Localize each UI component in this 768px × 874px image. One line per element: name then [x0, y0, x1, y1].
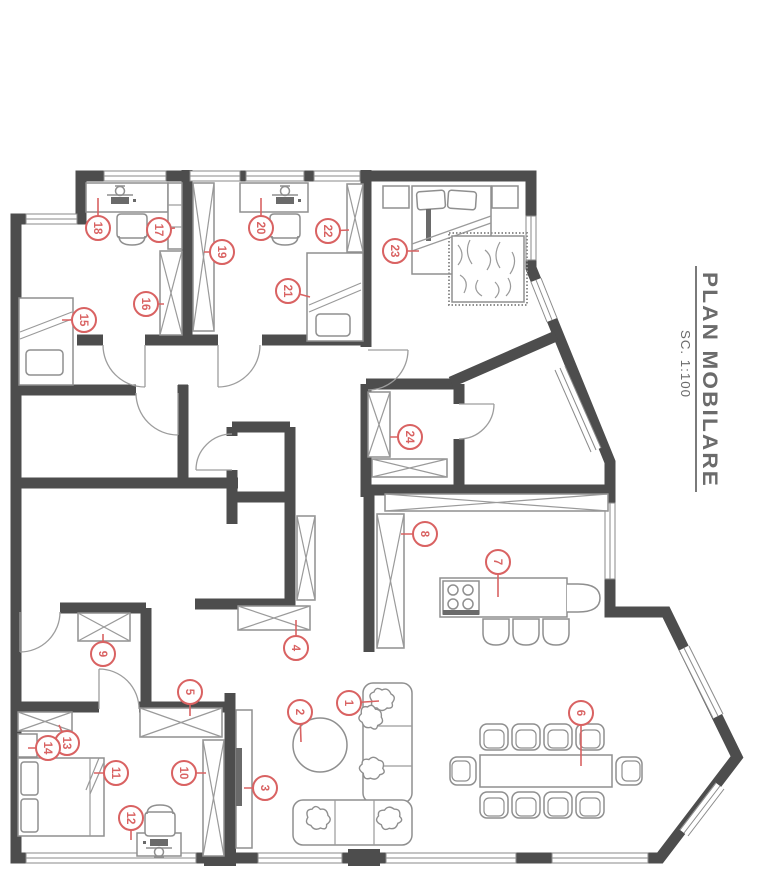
nightstand-left [383, 186, 409, 208]
rug-master [449, 233, 527, 305]
svg-text:24: 24 [403, 431, 415, 444]
svg-text:12: 12 [124, 812, 136, 825]
window-bottom-4 [552, 853, 648, 863]
window-topleft [26, 214, 77, 224]
wardrobe-4a [297, 516, 315, 600]
dresser-24b [372, 459, 447, 477]
svg-text:9: 9 [96, 651, 108, 657]
window-top-1 [104, 171, 166, 181]
svg-text:4: 4 [289, 645, 301, 652]
window-diag-bay-2 [680, 783, 724, 836]
floor-plan-page: 123456789101112131415161718192021222324 … [0, 0, 768, 874]
bed-11 [18, 758, 104, 836]
bed-15 [19, 298, 73, 385]
floor-plan-drawing: 123456789101112131415161718192021222324 … [0, 0, 768, 874]
furniture [18, 183, 642, 857]
door-bedroom1 [103, 345, 145, 387]
wardrobe-9 [78, 613, 130, 641]
furniture-marker-21: 21 [276, 279, 310, 303]
furniture-marker-22: 22 [316, 219, 349, 243]
chair-desk-20 [270, 214, 300, 245]
furniture-marker-8: 8 [401, 522, 437, 546]
kitchen-island-7 [440, 578, 600, 617]
window-right-kitchen [605, 503, 615, 579]
door-bedroom2 [218, 345, 260, 387]
svg-text:20: 20 [254, 222, 266, 235]
dining-table-6 [480, 755, 612, 787]
bed-21 [307, 253, 363, 341]
plan-scale: SC. 1:100 [678, 330, 693, 398]
svg-text:13: 13 [60, 737, 72, 750]
svg-text:17: 17 [152, 224, 164, 237]
nightstand-14 [18, 734, 37, 757]
svg-text:23: 23 [388, 245, 400, 258]
svg-text:5: 5 [183, 689, 195, 696]
chair-desk-18 [117, 214, 147, 245]
svg-text:11: 11 [109, 767, 121, 780]
wardrobe-16 [160, 251, 182, 335]
title-block: PLAN MOBILARE SC. 1:100 [678, 266, 721, 492]
furniture-marker-10: 10 [172, 761, 206, 785]
wardrobe-10 [203, 740, 224, 856]
window-diag-bay-1 [679, 646, 723, 718]
window-top-4 [314, 171, 360, 181]
cabinet-17 [168, 183, 182, 249]
svg-text:7: 7 [491, 559, 503, 565]
svg-text:21: 21 [281, 285, 293, 298]
kitchen-counter-north [385, 494, 608, 511]
wardrobe-5 [140, 708, 222, 737]
door-master-bath [459, 404, 494, 439]
svg-text:15: 15 [77, 314, 89, 327]
svg-text:8: 8 [418, 531, 430, 538]
door-bath [196, 434, 232, 470]
bar-stools [483, 619, 569, 645]
window-top-2 [190, 171, 240, 181]
door-bedroom3 [99, 669, 139, 709]
tv-unit-3 [236, 710, 252, 848]
plan-title: PLAN MOBILARE [698, 272, 721, 488]
window-bottom-2 [258, 853, 342, 863]
wardrobe-4b [238, 606, 310, 630]
wardrobe-8 [377, 514, 404, 648]
furniture-marker-24: 24 [390, 425, 422, 449]
window-diag-master-1 [531, 278, 557, 322]
desk-20 [240, 183, 308, 212]
svg-text:10: 10 [177, 767, 189, 780]
nightstand-right [492, 186, 518, 208]
wardrobe-24 [368, 392, 390, 457]
wardrobe-13 [18, 712, 72, 731]
svg-text:2: 2 [293, 709, 305, 715]
svg-text:18: 18 [91, 222, 103, 235]
chair-desk-12 [145, 805, 175, 836]
door-dressing [136, 393, 178, 435]
svg-text:16: 16 [139, 298, 151, 311]
svg-text:1: 1 [342, 700, 354, 707]
cabinet-22 [347, 184, 363, 252]
svg-text:14: 14 [41, 742, 53, 755]
svg-text:3: 3 [258, 785, 270, 791]
window-bottom-3 [386, 853, 516, 863]
svg-text:6: 6 [574, 710, 586, 716]
door-hall [20, 612, 60, 652]
svg-text:19: 19 [215, 246, 227, 259]
svg-text:22: 22 [321, 225, 333, 238]
window-top-3 [246, 171, 304, 181]
